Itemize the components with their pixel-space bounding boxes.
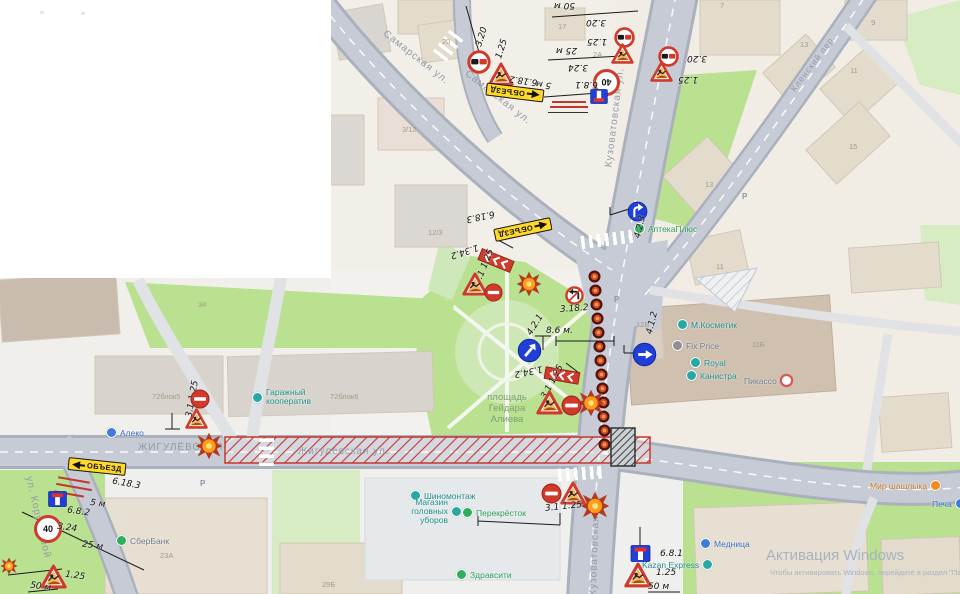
smudge xyxy=(81,12,85,15)
poi-royal: Royal xyxy=(690,357,726,368)
building-number: 9 xyxy=(871,18,875,27)
sign-code-label: 6.8.1 xyxy=(660,549,683,559)
building-number: 13 xyxy=(800,40,808,49)
sign-code-label: 1.25 xyxy=(656,568,676,578)
roadworks-sign-icon xyxy=(611,43,634,64)
turn-right-sign-icon xyxy=(632,342,657,367)
no-entry-sign-icon xyxy=(190,389,210,409)
dead-end-sign-icon xyxy=(48,491,67,507)
distance-label: 8.6 м. xyxy=(546,326,573,336)
poi-mednitsa: Медница xyxy=(700,538,750,549)
poi-aleko: Алеко xyxy=(106,427,144,438)
note-line xyxy=(548,112,588,113)
building-number: 13 xyxy=(705,180,713,189)
poi-zdravsiti: Здравсити xyxy=(456,569,512,580)
poi-kazanexpress: Kazan Express xyxy=(642,559,713,570)
building-number: 23А xyxy=(160,551,173,560)
warning-beacon-icon xyxy=(516,271,542,297)
poi-icon xyxy=(930,480,941,491)
no-entry-sign-icon xyxy=(484,283,503,302)
poi-icon xyxy=(677,319,688,330)
building-number: 11 xyxy=(716,262,724,271)
dead-end-sign-icon xyxy=(630,545,651,562)
poi-icon xyxy=(106,427,117,438)
sign-code-label: 1.25 xyxy=(678,74,698,84)
obstacle-right-sign-icon xyxy=(517,338,542,363)
poi-icon xyxy=(116,535,127,546)
building-number: 20 xyxy=(442,37,450,46)
distance-label: 50 м xyxy=(554,0,575,10)
smudge xyxy=(40,11,44,14)
white-cover-box xyxy=(0,0,331,278)
street-label-zhigulevskaya: Жигулевская ул. xyxy=(298,446,390,457)
arrow-left-icon xyxy=(526,90,540,100)
note-line xyxy=(552,101,586,103)
poi-mkosmetik: М.Косметик xyxy=(677,319,737,330)
roadworks-sign-icon xyxy=(185,408,208,429)
building-number: 2А xyxy=(593,50,602,59)
poi-icon xyxy=(700,538,711,549)
distance-label: 5 м xyxy=(89,498,106,510)
poi-icon xyxy=(456,569,467,580)
arrow-left-icon xyxy=(534,220,548,231)
poi-icon xyxy=(955,498,960,509)
dead-end-sign-icon xyxy=(590,89,608,104)
roadworks-sign-icon xyxy=(650,61,673,82)
poi-sberbank: СберБанк xyxy=(116,535,169,546)
sign-code-label: 1.25 xyxy=(587,36,607,46)
note-line xyxy=(550,106,588,108)
parking-mark: Р xyxy=(742,192,747,201)
parking-mark: Р xyxy=(200,479,205,488)
distance-label: 50 м xyxy=(648,582,669,592)
poi-magazin: Магазин головных уборов xyxy=(396,498,462,525)
poi-mirshashlyka: Мир шашлыка xyxy=(870,480,941,491)
poi-pechat: Печа xyxy=(932,498,960,509)
poi-perekrestok: Перекрёсток xyxy=(462,507,526,518)
arrow-left-icon xyxy=(72,460,86,469)
building-number: 17 xyxy=(558,22,566,31)
parking-mark: Р xyxy=(614,295,619,304)
windows-activation-watermark-sub: Чтобы активировать Windows, перейдите в … xyxy=(770,568,960,577)
sign-code-label: 3.20 xyxy=(687,53,707,63)
warning-beacon-icon xyxy=(195,432,223,460)
building-number: 12/3 xyxy=(428,228,443,237)
sign-code-label: 3.20 xyxy=(586,17,606,27)
building-number: 15 xyxy=(849,142,857,151)
building-number: 29Б xyxy=(322,580,335,589)
poi-kanistra: Канистра xyxy=(686,370,737,381)
building-number: 3/12 xyxy=(402,125,417,134)
warning-beacon-icon xyxy=(0,557,18,575)
building-number: 11Б xyxy=(752,340,765,349)
poi-icon xyxy=(252,392,263,403)
poi-icon xyxy=(780,374,793,387)
poi-icon xyxy=(462,507,473,518)
building-number: 7 xyxy=(720,1,724,10)
no-entry-sign-icon xyxy=(561,395,582,416)
poi-fixprice: Fix Price xyxy=(672,340,719,351)
poi-icon xyxy=(690,357,701,368)
sign-code-label: 6.8.1 xyxy=(575,79,598,89)
sign-code-label: 3.24 xyxy=(568,62,588,72)
crosswalk xyxy=(259,437,274,466)
poi-icon xyxy=(686,370,697,381)
poi-icon xyxy=(672,340,683,351)
windows-activation-watermark: Активация Windows xyxy=(766,547,904,564)
no-left-turn-sign-icon xyxy=(565,286,584,305)
building-number: 34 xyxy=(198,300,206,309)
building-number: 11 xyxy=(850,66,858,75)
building-number: 72блок6 xyxy=(330,392,358,401)
poi-picasso: Пикассо xyxy=(744,374,793,387)
roadworks-sign-icon xyxy=(536,390,563,415)
sign-code-label: 3.18.2 xyxy=(560,303,589,315)
no-entry-sign-icon xyxy=(541,483,562,504)
building-number: 72блок5 xyxy=(152,392,180,401)
traffic-scheme-map: Самарская ул. Самарская ул. Кузоватовска… xyxy=(0,0,960,594)
poi-icon xyxy=(451,506,462,517)
distance-label: 25 м xyxy=(556,45,577,55)
poi-icon xyxy=(702,559,713,570)
poi-garazh: Гаражный кооператив xyxy=(252,388,328,406)
